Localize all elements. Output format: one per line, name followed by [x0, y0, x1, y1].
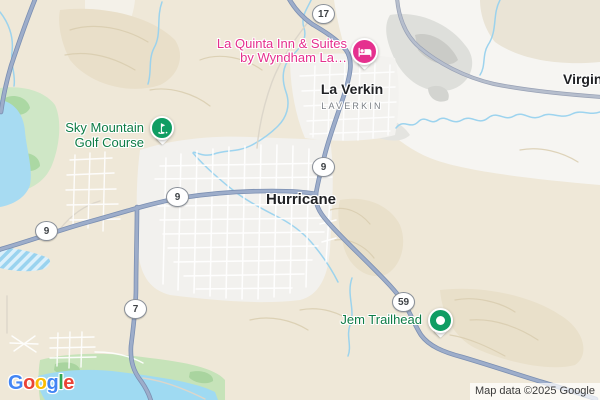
city-name: Hurricane — [266, 191, 336, 208]
route-shield-label: 9 — [321, 162, 327, 173]
hotel-marker-circle — [351, 38, 378, 65]
map-viewport[interactable]: 17 9 9 9 7 59 La Quinta Inn & Suites by … — [0, 0, 600, 400]
city-name: Virgin — [563, 71, 600, 87]
poi-label-line2: by Wyndham La… — [217, 51, 347, 65]
route-shield-17: 17 — [312, 4, 335, 24]
hotel-marker[interactable] — [351, 38, 378, 65]
route-shield-label: 17 — [318, 9, 329, 20]
city-label-virgin[interactable]: Virgin — [563, 72, 600, 88]
google-logo[interactable]: Google — [8, 372, 74, 395]
route-shield-label: 9 — [175, 192, 181, 203]
route-shield-59: 59 — [392, 292, 415, 312]
route-shield-9: 9 — [35, 221, 58, 241]
trailhead-marker-circle — [428, 308, 453, 333]
route-shield-9: 9 — [166, 187, 189, 207]
logo-letter: o — [35, 372, 47, 394]
logo-letter: o — [23, 372, 35, 394]
attribution-text: Map data ©2025 Google — [475, 385, 595, 397]
city-label-hurricane[interactable]: Hurricane — [266, 192, 336, 209]
golf-course-marker[interactable] — [150, 116, 174, 140]
poi-label-sky-mountain-golf[interactable]: Sky Mountain Golf Course — [65, 120, 144, 150]
logo-letter: G — [8, 372, 23, 394]
golf-marker-circle — [150, 116, 174, 140]
map-attribution: Map data ©2025 Google — [470, 383, 600, 400]
route-shield-7: 7 — [124, 299, 147, 319]
route-shield-label: 9 — [44, 226, 50, 237]
logo-letter: e — [63, 372, 74, 394]
poi-label-line1: Sky Mountain — [65, 120, 144, 135]
poi-label-line2: Golf Course — [65, 135, 144, 150]
golf-flag-icon — [156, 122, 169, 135]
logo-letter: g — [47, 372, 59, 394]
city-subtitle: LAVERKIN — [321, 101, 383, 111]
poi-label-la-quinta[interactable]: La Quinta Inn & Suites by Wyndham La… — [217, 37, 347, 65]
trailhead-marker[interactable] — [428, 308, 453, 333]
route-shield-9: 9 — [312, 157, 335, 177]
city-name: La Verkin — [321, 81, 383, 97]
route-shield-label: 59 — [398, 297, 409, 308]
route-shield-label: 7 — [133, 304, 139, 315]
poi-label-jem-trailhead[interactable]: Jem Trailhead — [340, 312, 422, 327]
poi-label-line1: Jem Trailhead — [340, 312, 422, 327]
poi-label-line1: La Quinta Inn & Suites — [217, 37, 347, 51]
dot-icon — [436, 316, 445, 325]
city-label-la-verkin[interactable]: La Verkin LAVERKIN — [321, 82, 383, 111]
bed-icon — [358, 45, 372, 59]
